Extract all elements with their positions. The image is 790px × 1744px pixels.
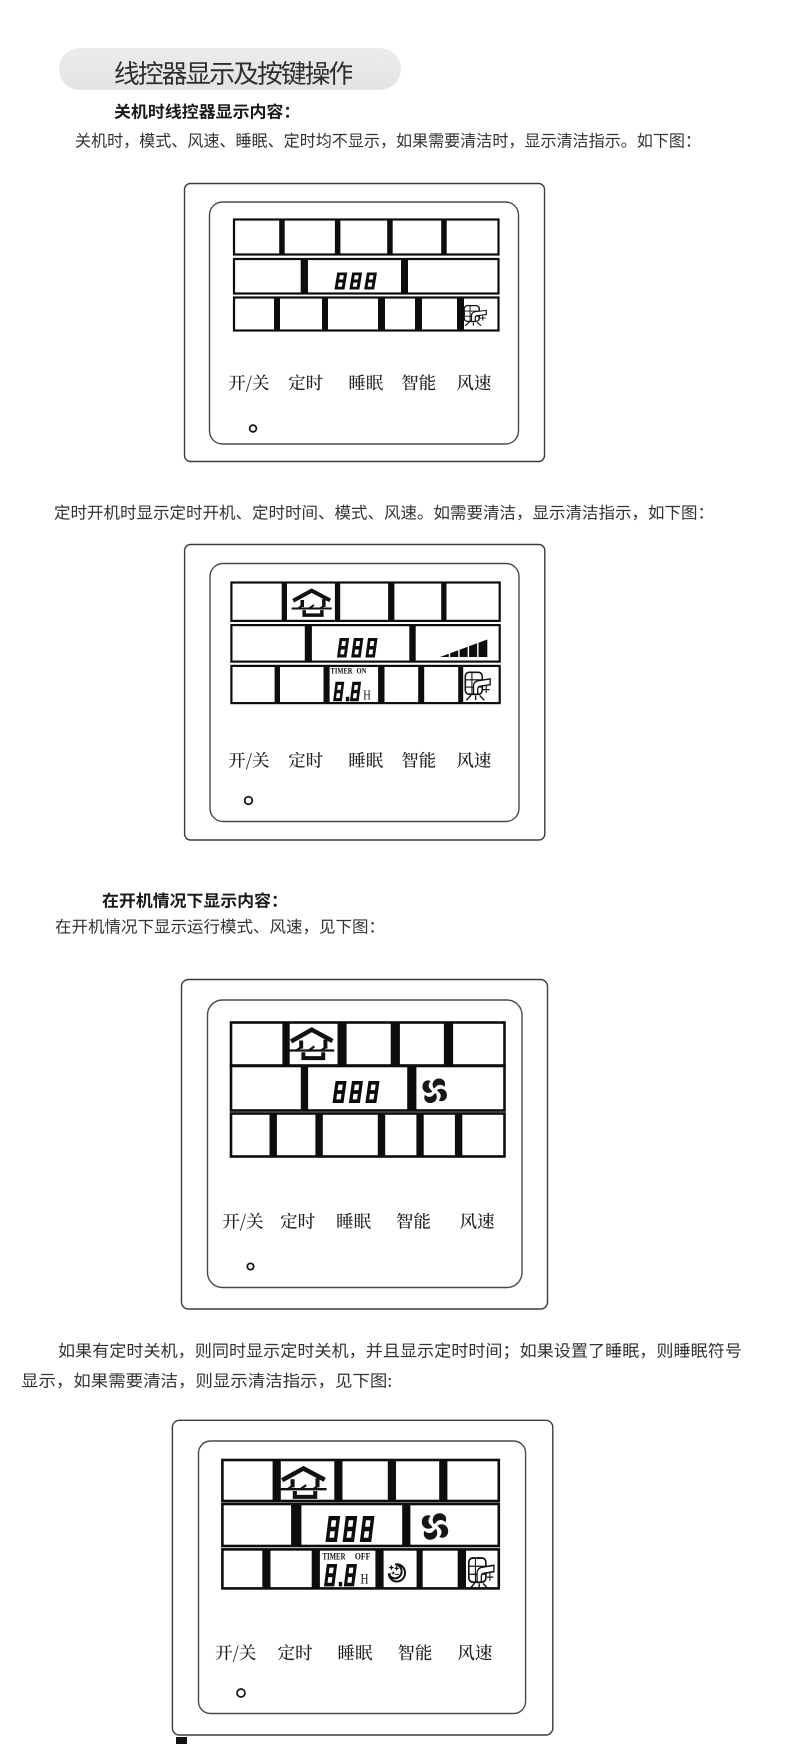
svg-text:H: H bbox=[363, 688, 370, 703]
svg-text:H: H bbox=[360, 1572, 368, 1588]
svg-text:OFF: OFF bbox=[355, 1552, 371, 1562]
svg-text:TIMER: TIMER bbox=[322, 1552, 345, 1562]
svg-text:TIMER: TIMER bbox=[330, 665, 353, 675]
svg-text:ON: ON bbox=[356, 665, 367, 675]
